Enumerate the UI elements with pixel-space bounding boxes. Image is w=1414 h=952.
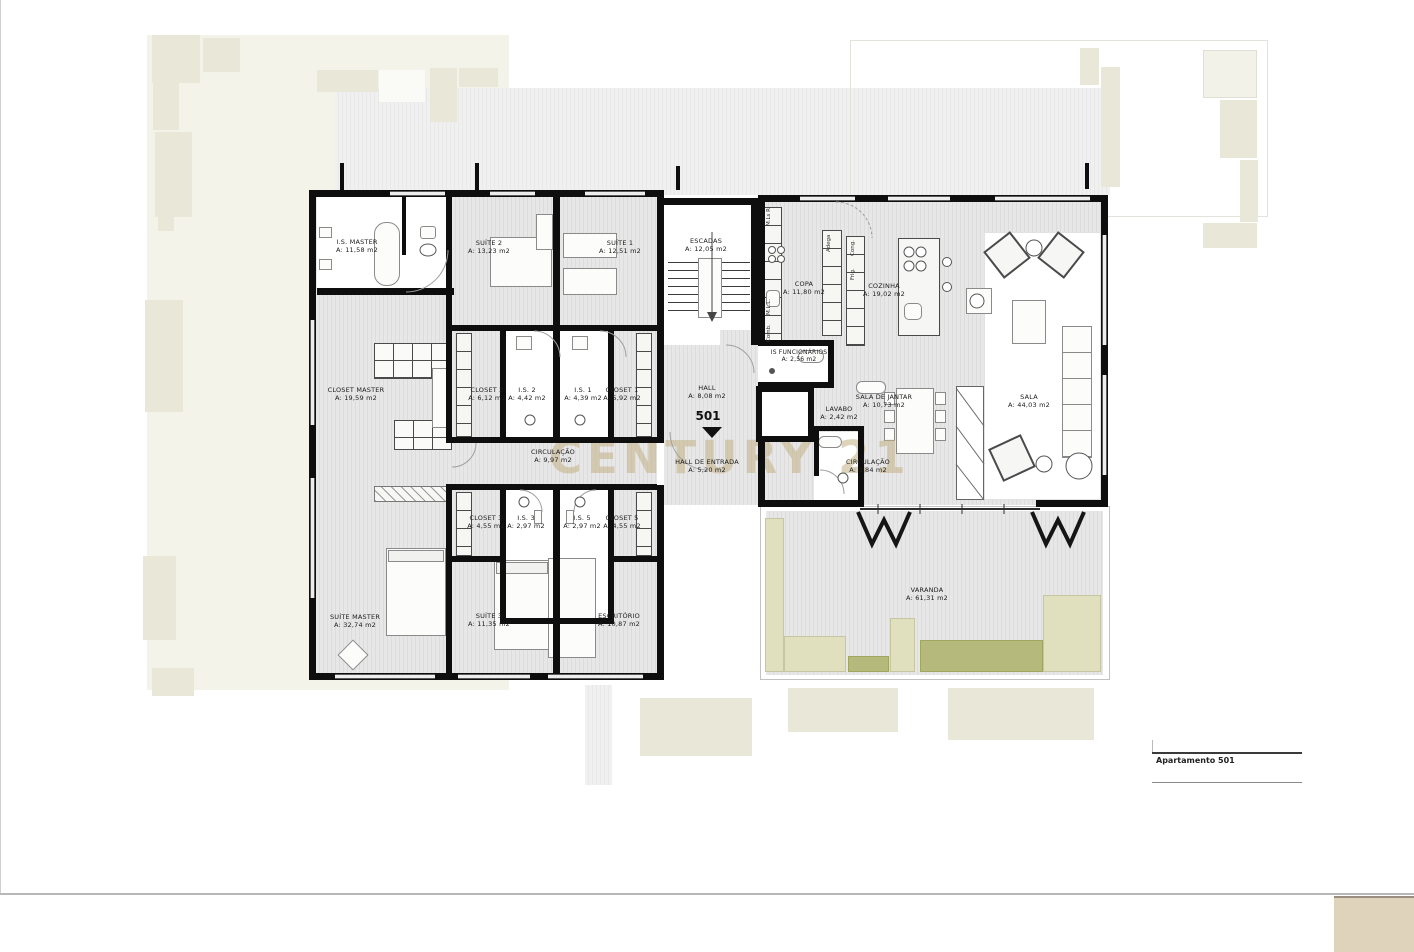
- window: [800, 196, 855, 201]
- stair-treads: [668, 262, 698, 314]
- room-label-sala: SALAA: 44,03 m2: [964, 393, 1094, 409]
- radiator-hatch: [374, 486, 452, 502]
- window: [548, 674, 643, 679]
- site-patch: [459, 68, 498, 87]
- site-patch: [1080, 48, 1099, 85]
- side-table: [966, 288, 992, 314]
- page-border-left: [0, 0, 1, 895]
- planter: [920, 640, 1043, 672]
- column-tick: [340, 163, 344, 190]
- room-label-suite-master: SUÍTE MASTERA: 32,74 m2: [290, 613, 420, 629]
- room-label-circulacao-1: CIRCULAÇÃOA: 9,97 m2: [488, 448, 618, 464]
- site-patch: [1203, 50, 1257, 98]
- column-tick: [475, 163, 479, 190]
- room-label-suite3: SUÍTE 3A: 11,35 m2: [424, 612, 554, 628]
- wall: [1036, 500, 1108, 507]
- room-label-is-master: I.S. MASTERA: 11,58 m2: [292, 238, 422, 254]
- sink: [904, 303, 922, 320]
- site-patch: [640, 698, 752, 756]
- unit-number: 501: [683, 409, 733, 423]
- planter: [1043, 595, 1101, 672]
- room-label-escritorio: ESCRITÓRIOA: 10,87 m2: [554, 612, 684, 628]
- wall: [452, 556, 506, 562]
- room-label-sala-de-jantar: SALA DE JANTARA: 10,73 m2: [819, 393, 949, 409]
- site-patch: [585, 685, 612, 785]
- bed-suite1: [563, 268, 617, 295]
- room-label-closet5: CLOSET 5A: 4,55 m2: [598, 514, 646, 530]
- stair-landing: [698, 258, 722, 318]
- site-patch: [145, 300, 183, 412]
- title-block-rule: [1152, 782, 1302, 783]
- site-patch: [153, 83, 179, 130]
- wall: [660, 198, 758, 205]
- sink: [319, 259, 332, 270]
- cabinet-label: Frig.: [850, 268, 856, 280]
- chair: [935, 410, 946, 423]
- planter: [765, 518, 784, 672]
- site-patch: [1203, 223, 1257, 248]
- chair: [884, 410, 895, 423]
- room-label-closet2: CLOSET 2A: 6,12 m2: [465, 386, 509, 402]
- room-label-suite2: SUÍTE 2A: 13,23 m2: [424, 239, 554, 255]
- cabinet-label: Adega: [826, 235, 832, 252]
- site-patch: [152, 35, 200, 83]
- site-patch: [430, 68, 457, 122]
- site-patch: [203, 38, 240, 72]
- window: [310, 320, 315, 425]
- window: [390, 191, 445, 196]
- wall: [553, 624, 560, 680]
- planter: [890, 618, 915, 672]
- wardrobe: [432, 368, 447, 428]
- room-label-varanda: VARANDAA: 61,31 m2: [862, 586, 992, 602]
- planter: [784, 636, 846, 672]
- title-block-tick: [1152, 740, 1153, 752]
- site-patch: [158, 217, 174, 231]
- window: [310, 478, 315, 598]
- room-label-escadas: ESCADASA: 12,05 m2: [641, 237, 771, 253]
- room-label-is-funcionarios: IS FUNCIONÁRIOSA: 2,56 m2: [734, 349, 864, 363]
- wall: [758, 500, 864, 507]
- wall: [446, 490, 452, 673]
- room-label-hall-de-entrada: HALL DE ENTRADAA: 5,20 m2: [642, 458, 772, 474]
- room-label-is2: I.S. 2A: 4,42 m2: [505, 386, 549, 402]
- chair: [935, 428, 946, 441]
- window: [995, 196, 1090, 201]
- floor-plan-sheet: CENTURY 21 I.S. MASTERA: 11,58 m2 SUÍTE …: [0, 0, 1414, 952]
- room-label-closet3: CLOSET 3A: 4,55 m2: [462, 514, 510, 530]
- page-border-bottom: [0, 893, 1414, 895]
- site-patch: [1101, 67, 1120, 187]
- cabinet-label: Cong.: [850, 240, 856, 256]
- column-tick: [676, 166, 680, 190]
- window: [490, 191, 535, 196]
- bathtub: [374, 222, 400, 286]
- site-patch: [155, 132, 192, 217]
- site-patch: [379, 70, 425, 102]
- corner-swatch: [1334, 896, 1414, 952]
- pillows: [388, 550, 444, 562]
- coffee-table: [1012, 300, 1046, 344]
- site-patch: [1220, 100, 1257, 158]
- sink: [319, 227, 332, 238]
- title-block-label: Apartamento 501: [1156, 756, 1235, 765]
- site-patch: [1240, 160, 1258, 222]
- room-label-is3: I.S. 3A: 2,97 m2: [504, 514, 548, 530]
- wall: [814, 426, 864, 431]
- room-label-closet-master: CLOSET MASTERA: 19,59 m2: [291, 386, 421, 402]
- wall: [751, 198, 758, 345]
- cabinet-label: M.Ls R: [766, 208, 772, 226]
- site-patch: [317, 70, 378, 92]
- room-label-is1: I.S. 1A: 4,39 m2: [561, 386, 605, 402]
- site-patch: [788, 688, 898, 732]
- closet-shelving: [456, 333, 472, 437]
- cabinet-label: Comb.: [766, 324, 772, 342]
- wall: [657, 190, 664, 345]
- cabinet-label: M.L.L.: [766, 299, 772, 315]
- column-tick: [1085, 163, 1089, 189]
- sofa: [1062, 326, 1092, 458]
- room-label-closet1: CLOSET 1A: 5,92 m2: [600, 386, 644, 402]
- room-label-cozinha: COZINHAA: 19,02 m2: [819, 282, 949, 298]
- window: [585, 191, 645, 196]
- sink: [516, 336, 532, 350]
- window: [1102, 375, 1107, 475]
- site-patch: [948, 688, 1094, 740]
- wall: [446, 437, 657, 443]
- wall: [553, 490, 560, 624]
- wall: [657, 485, 664, 680]
- window: [888, 196, 950, 201]
- toilet: [420, 226, 436, 239]
- wall: [446, 293, 452, 443]
- wall: [553, 331, 560, 443]
- room-label-hall: HALLA: 8,08 m2: [642, 384, 772, 400]
- site-patch: [143, 556, 176, 640]
- window: [335, 674, 435, 679]
- window: [1102, 235, 1107, 345]
- window: [458, 674, 530, 679]
- planter: [848, 656, 889, 672]
- wall: [608, 556, 657, 562]
- wall: [309, 190, 316, 680]
- wall: [758, 195, 765, 345]
- wall: [446, 484, 657, 490]
- sink: [572, 336, 588, 350]
- site-patch: [152, 668, 194, 696]
- room-label-circulacao-2: CIRCULAÇÃOA: 9,84 m2: [803, 458, 933, 474]
- wall: [553, 197, 560, 331]
- wall: [317, 288, 454, 295]
- title-block-rule: [1152, 752, 1302, 754]
